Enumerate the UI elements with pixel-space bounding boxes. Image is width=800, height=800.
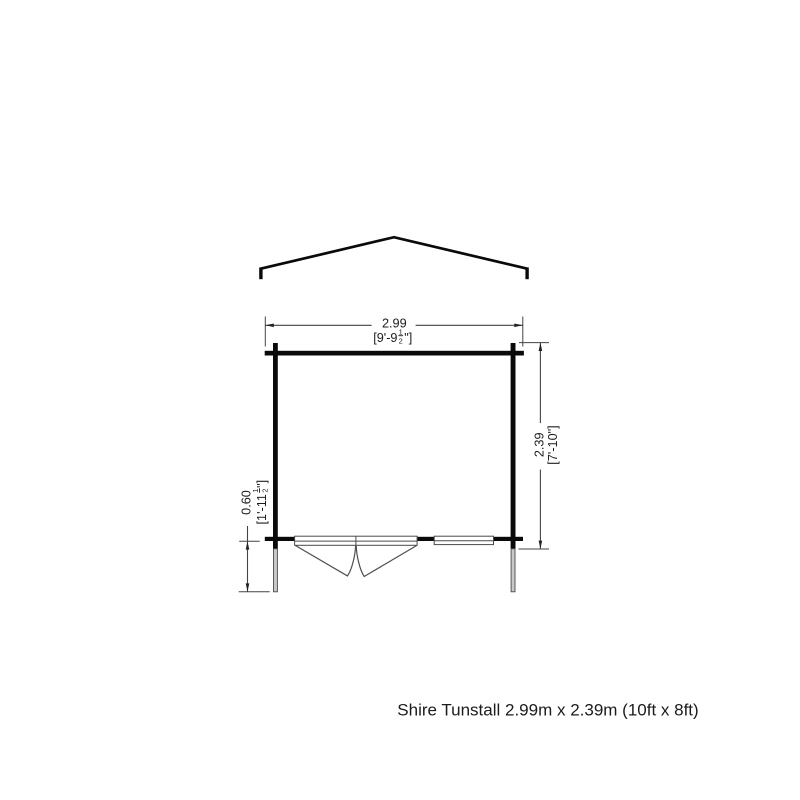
svg-text:2.39: 2.39 — [532, 432, 546, 457]
svg-text:2.99: 2.99 — [382, 317, 407, 331]
svg-text:1: 1 — [399, 327, 403, 336]
svg-text:0.60: 0.60 — [239, 490, 253, 515]
svg-text:[9'-9: [9'-9 — [373, 331, 397, 345]
svg-text:1: 1 — [251, 488, 260, 492]
svg-text:[7'-10"]: [7'-10"] — [546, 425, 560, 464]
svg-text:"]: "] — [255, 480, 269, 488]
svg-text:2: 2 — [260, 488, 269, 492]
svg-text:"]: "] — [404, 331, 412, 345]
svg-text:[1'-11: [1'-11 — [255, 494, 269, 524]
svg-text:2: 2 — [399, 337, 403, 346]
svg-text:Shire Tunstall 2.99m x 2.39m (: Shire Tunstall 2.99m x 2.39m (10ft x 8ft… — [397, 701, 698, 720]
